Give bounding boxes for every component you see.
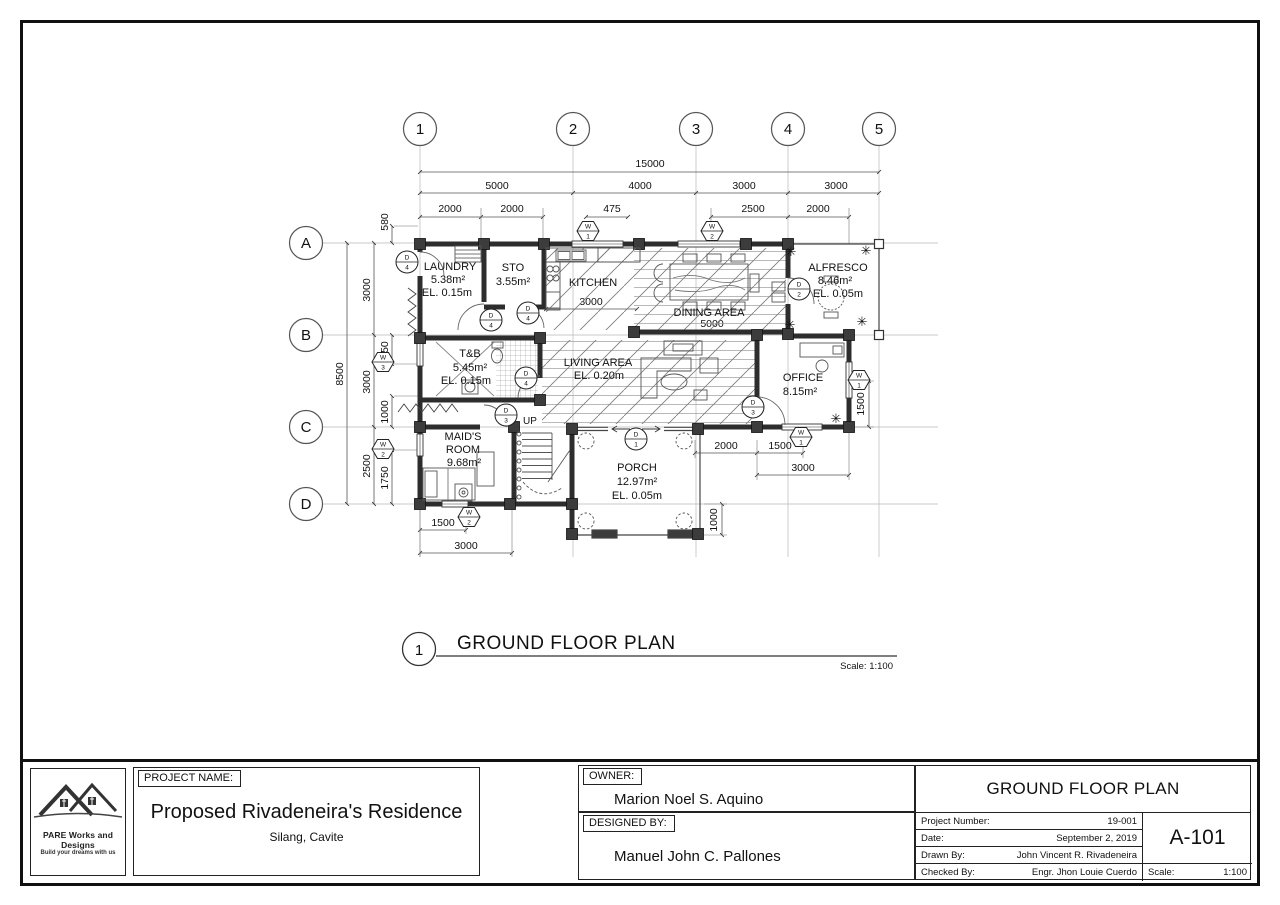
room-label-alfresco: ALFRESCO 8.46m² EL. 0.05m xyxy=(808,262,868,300)
svg-text:LIVING AREA: LIVING AREA xyxy=(564,357,633,369)
svg-text:D: D xyxy=(301,496,312,513)
grid-bubble-row-a: A xyxy=(290,227,323,260)
stairs xyxy=(517,432,570,499)
owner-name: Marion Noel S. Aquino xyxy=(614,791,763,808)
field-value: Engr. Jhon Louie Cuerdo xyxy=(1032,867,1137,878)
designed-by-label: DESIGNED BY: xyxy=(583,815,675,832)
scale-label: Scale: xyxy=(1148,867,1174,878)
project-name-section: PROJECT NAME: Proposed Rivadeneira's Res… xyxy=(133,767,480,876)
svg-text:B: B xyxy=(301,327,311,344)
svg-text:STO: STO xyxy=(502,262,525,274)
door-tag-icon: D4 xyxy=(480,309,502,331)
grid-bubble-row-d: D xyxy=(290,488,323,521)
window-tag-icon: W2 xyxy=(372,440,394,459)
svg-text:ROOM: ROOM xyxy=(446,444,480,456)
dim-span-4: 3000 xyxy=(824,180,848,192)
svg-text:A: A xyxy=(301,235,311,252)
svg-text:D: D xyxy=(504,408,509,415)
project-name-value: Proposed Rivadeneira's Residence xyxy=(134,801,479,824)
window-tag-icon: W3 xyxy=(372,353,394,372)
svg-text:W: W xyxy=(709,224,716,231)
field-value: 19-001 xyxy=(1107,816,1137,827)
drawing-title: 1 GROUND FLOOR PLAN Scale: 1:100 xyxy=(403,633,898,673)
dim-porch-top-1: 2000 xyxy=(714,440,738,452)
dim-left-sub-1: 580 xyxy=(379,213,391,231)
room-label-kitchen: KITCHEN xyxy=(569,277,617,289)
dim-left-sub-4: 1750 xyxy=(379,466,391,490)
svg-text:W: W xyxy=(380,442,387,449)
svg-text:1: 1 xyxy=(857,383,861,390)
sheet-fields: Project Number: 19-001 Date: September 2… xyxy=(916,813,1143,881)
svg-text:MAID'S: MAID'S xyxy=(445,431,482,443)
svg-text:W: W xyxy=(466,510,473,517)
window-tag-icon: W1 xyxy=(848,371,870,390)
svg-text:D: D xyxy=(524,371,529,378)
company-logo-icon xyxy=(32,769,124,825)
svg-text:LAUNDRY: LAUNDRY xyxy=(424,261,477,273)
svg-text:4: 4 xyxy=(526,316,530,323)
svg-text:4: 4 xyxy=(405,265,409,272)
door-tag-icon: D4 xyxy=(515,367,537,389)
field-row: Drawn By: John Vincent R. Rivadeneira xyxy=(916,847,1142,864)
svg-text:3: 3 xyxy=(381,365,385,372)
field-label: Date: xyxy=(921,833,944,844)
svg-text:5.45m²: 5.45m² xyxy=(453,362,488,374)
titleblock-divider xyxy=(23,759,1257,762)
dim-sub-3: 475 xyxy=(603,203,621,215)
door-tag-icon: D4 xyxy=(396,251,418,273)
svg-text:2: 2 xyxy=(467,520,471,527)
dim-office-side: 1500 xyxy=(855,392,867,416)
room-label-sto: STO 3.55m² xyxy=(496,262,531,288)
plant-icon: ✳ xyxy=(786,244,797,259)
svg-text:W: W xyxy=(585,224,592,231)
company-name: PARE Works and Designs xyxy=(31,830,125,850)
svg-text:EL. 0.20m: EL. 0.20m xyxy=(574,370,624,382)
svg-text:W: W xyxy=(856,373,863,380)
plant-icon: ✳ xyxy=(831,411,842,426)
field-label: Project Number: xyxy=(921,816,990,827)
svg-text:D: D xyxy=(751,400,756,407)
svg-text:W: W xyxy=(798,430,805,437)
svg-text:9.68m²: 9.68m² xyxy=(447,457,482,469)
field-label: Drawn By: xyxy=(921,850,965,861)
svg-text:EL. 0.05m: EL. 0.05m xyxy=(813,288,863,300)
svg-text:3: 3 xyxy=(751,410,755,417)
svg-text:D: D xyxy=(797,282,802,289)
sheet-info-section: GROUND FLOOR PLAN Project Number: 19-001… xyxy=(915,765,1251,880)
field-row: Project Number: 19-001 xyxy=(916,813,1142,830)
owner-label: OWNER: xyxy=(583,768,642,785)
designed-by-section: DESIGNED BY: Manuel John C. Pallones xyxy=(578,812,915,880)
field-value: September 2, 2019 xyxy=(1056,833,1137,844)
svg-text:EL. 0.15m: EL. 0.15m xyxy=(422,287,472,299)
svg-text:3: 3 xyxy=(692,121,700,138)
dim-left-2: 3000 xyxy=(361,370,373,394)
dim-sub-4: 2500 xyxy=(741,203,765,215)
drawing-title-scale: Scale: 1:100 xyxy=(840,661,893,672)
svg-text:4: 4 xyxy=(489,323,493,330)
field-row: Date: September 2, 2019 xyxy=(916,830,1142,847)
svg-text:T&B: T&B xyxy=(459,348,480,360)
drawing-title-number: 1 xyxy=(415,642,423,659)
field-value: John Vincent R. Rivadeneira xyxy=(1017,850,1137,861)
room-label-office: OFFICE 8.15m² xyxy=(783,372,823,398)
dim-left-sub-3: 1000 xyxy=(379,400,391,424)
plant-icon: ✳ xyxy=(861,243,872,258)
grid-bubble-row-c: C xyxy=(290,411,323,444)
svg-text:1: 1 xyxy=(799,440,803,447)
dim-left-1: 3000 xyxy=(361,278,373,302)
svg-text:D: D xyxy=(526,306,531,313)
plant-icon: ✳ xyxy=(785,317,796,332)
plant-icon: ✳ xyxy=(857,314,868,329)
door-tag-icon: D3 xyxy=(742,396,764,418)
svg-text:3.55m²: 3.55m² xyxy=(496,276,531,288)
dim-total-width: 15000 xyxy=(635,158,664,170)
window-dining xyxy=(678,241,740,247)
svg-text:PORCH: PORCH xyxy=(617,462,657,474)
svg-text:EL. 0.15m: EL. 0.15m xyxy=(441,375,491,387)
dim-office-bottom: 3000 xyxy=(791,462,815,474)
room-label-porch: PORCH 12.97m² EL. 0.05m xyxy=(612,462,662,502)
svg-text:2: 2 xyxy=(381,452,385,459)
drawing-title-text: GROUND FLOOR PLAN xyxy=(457,633,676,654)
window-maid-west xyxy=(417,434,423,456)
stair-up-label: UP xyxy=(523,416,537,427)
svg-text:C: C xyxy=(301,419,312,436)
company-tagline: Build your dreams with us xyxy=(31,850,125,856)
dim-span-3: 3000 xyxy=(732,180,756,192)
svg-text:8.15m²: 8.15m² xyxy=(783,386,818,398)
svg-text:4: 4 xyxy=(784,121,792,138)
svg-text:1: 1 xyxy=(586,234,590,241)
window-kitchen xyxy=(572,241,623,247)
owner-section: OWNER: Marion Noel S. Aquino xyxy=(578,765,915,812)
scale-value: 1:100 xyxy=(1223,867,1247,878)
grid-bubble-col-4: 4 xyxy=(772,113,805,146)
sheet-title: GROUND FLOOR PLAN xyxy=(916,766,1250,813)
window-tag-icon: W1 xyxy=(790,428,812,447)
scale-row: Scale: 1:100 xyxy=(1143,864,1252,881)
dim-span-1: 5000 xyxy=(485,180,509,192)
svg-text:W: W xyxy=(380,355,387,362)
room-label-maids: MAID'S ROOM 9.68m² xyxy=(445,431,482,469)
svg-text:2: 2 xyxy=(710,234,714,241)
svg-text:EL. 0.05m: EL. 0.05m xyxy=(612,490,662,502)
room-label-laundry: LAUNDRY 5.38m² EL. 0.15m xyxy=(422,261,477,299)
dim-maid-2: 3000 xyxy=(454,540,478,552)
door-tag-icon: D4 xyxy=(517,302,539,324)
dim-span-2: 4000 xyxy=(628,180,652,192)
svg-text:4: 4 xyxy=(524,381,528,388)
sheet-number: A-101 xyxy=(1143,813,1252,864)
door-tag-icon: D3 xyxy=(495,404,517,426)
svg-text:8.46m²: 8.46m² xyxy=(818,275,853,287)
svg-text:2: 2 xyxy=(569,121,577,138)
room-label-dining: DINING AREA xyxy=(674,307,746,319)
dim-sub-1: 2000 xyxy=(438,203,462,215)
dim-left-total: 8500 xyxy=(334,362,346,386)
svg-text:OFFICE: OFFICE xyxy=(783,372,823,384)
svg-text:D: D xyxy=(405,255,410,262)
svg-text:1: 1 xyxy=(416,121,424,138)
window-tag-icon: W2 xyxy=(701,222,723,241)
grid-bubble-row-b: B xyxy=(290,319,323,352)
company-logo: PARE Works and Designs Build your dreams… xyxy=(30,768,126,876)
field-label: Checked By: xyxy=(921,867,975,878)
project-name-label: PROJECT NAME: xyxy=(138,770,241,787)
grid-bubble-col-3: 3 xyxy=(680,113,713,146)
svg-text:ALFRESCO: ALFRESCO xyxy=(808,262,868,274)
dim-sub-2: 2000 xyxy=(500,203,524,215)
door-tag-icon: D2 xyxy=(788,278,810,300)
svg-text:12.97m²: 12.97m² xyxy=(617,476,658,488)
window-tag-icon: W1 xyxy=(577,222,599,241)
grid-bubble-col-1: 1 xyxy=(404,113,437,146)
svg-text:3: 3 xyxy=(504,418,508,425)
svg-text:5: 5 xyxy=(875,121,883,138)
project-location: Silang, Cavite xyxy=(134,830,479,844)
window-tag-icon: W2 xyxy=(458,508,480,527)
window-maid-south xyxy=(442,501,468,507)
field-row: Checked By: Engr. Jhon Louie Cuerdo xyxy=(916,864,1142,881)
door-tag-icon: D1 xyxy=(625,428,647,450)
window-tb xyxy=(417,342,423,366)
designer-name: Manuel John C. Pallones xyxy=(614,848,781,865)
svg-text:D: D xyxy=(489,313,494,320)
svg-text:5.38m²: 5.38m² xyxy=(431,274,466,286)
svg-text:D: D xyxy=(634,432,639,439)
dim-left-3: 2500 xyxy=(361,454,373,478)
dim-porch-side: 1000 xyxy=(708,508,720,532)
svg-text:1: 1 xyxy=(634,442,638,449)
room-label-living: LIVING AREA EL. 0.20m xyxy=(564,357,633,382)
grid-bubble-col-2: 2 xyxy=(557,113,590,146)
grid-bubble-col-5: 5 xyxy=(863,113,896,146)
svg-text:2: 2 xyxy=(797,292,801,299)
drawing-sheet: 1 2 3 4 5 A B C D xyxy=(0,0,1280,905)
dim-sub-5: 2000 xyxy=(806,203,830,215)
dim-porch-top-2: 1500 xyxy=(768,440,792,452)
dim-maid-1: 1500 xyxy=(431,517,455,529)
